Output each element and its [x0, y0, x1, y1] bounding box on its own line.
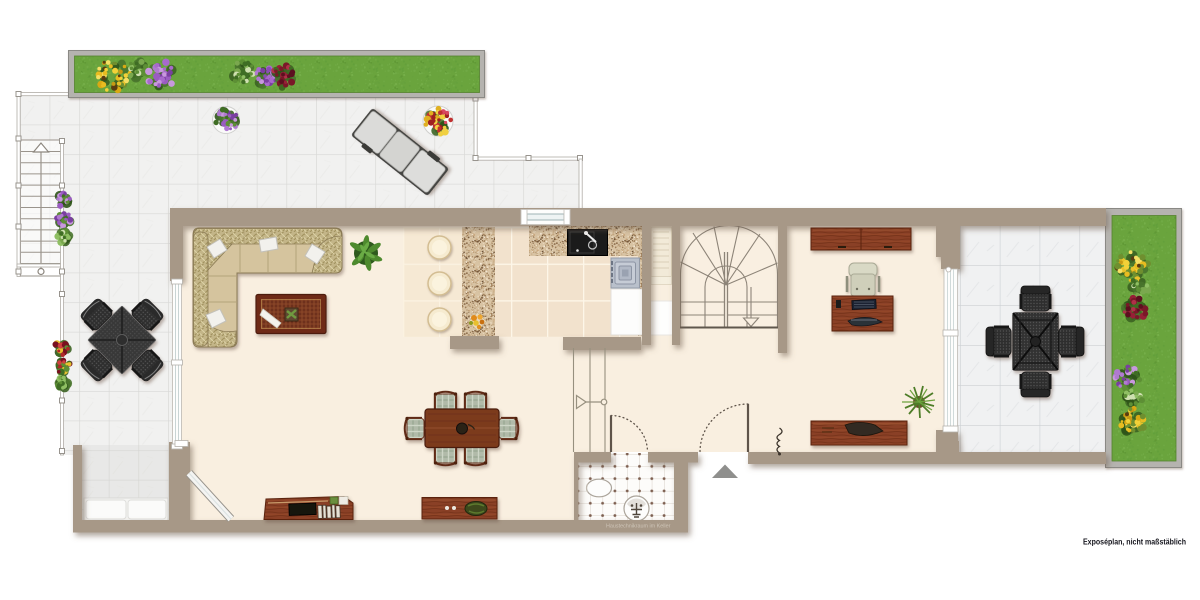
svg-text:Haustechnikraum im Keller: Haustechnikraum im Keller	[606, 524, 671, 530]
svg-text:Exposéplan, nicht maßstäblich: Exposéplan, nicht maßstäblich	[1083, 538, 1186, 547]
